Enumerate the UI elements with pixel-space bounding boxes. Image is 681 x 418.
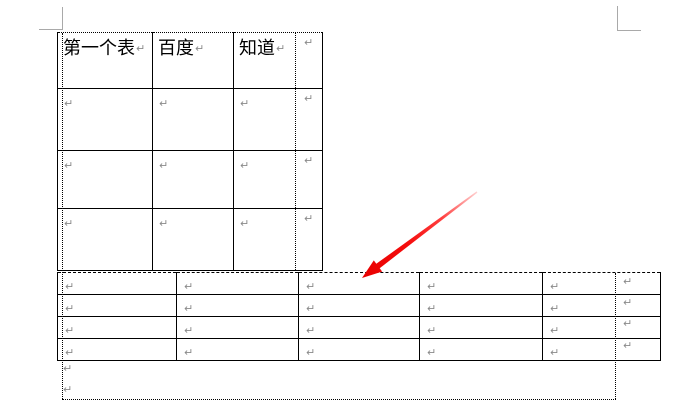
table-row: ↵↵↵↵↵ — [58, 339, 661, 361]
paragraph-mark: ↵ — [159, 97, 168, 110]
table-cell[interactable]: ↵ — [177, 317, 299, 339]
paragraph-mark: ↵ — [306, 346, 315, 359]
table-cell[interactable]: ↵ — [543, 339, 661, 361]
table-row: ↵↵↵ — [58, 151, 323, 209]
table-cell[interactable]: ↵ — [58, 151, 153, 209]
paragraph-mark: ↵ — [159, 217, 168, 230]
table-cell[interactable]: ↵ — [177, 273, 299, 295]
table-cell[interactable]: ↵ — [58, 317, 177, 339]
paragraph-mark: ↵ — [184, 346, 193, 359]
first-table[interactable]: 第一个表↵百度↵知道↵↵↵↵↵↵↵↵↵↵ — [57, 32, 323, 271]
paragraph-mark: ↵ — [136, 42, 145, 55]
table-cell[interactable]: ↵ — [420, 273, 543, 295]
paragraph-mark: ↵ — [623, 318, 632, 329]
second-table[interactable]: ↵↵↵↵↵↵↵↵↵↵↵↵↵↵↵↵↵↵↵↵ — [57, 272, 661, 361]
margin-crop-mark-top-right-horizontal — [617, 30, 641, 31]
paragraph-mark: ↵ — [550, 280, 559, 293]
paragraph-mark: ↵ — [623, 340, 632, 351]
table-cell[interactable]: ↵ — [299, 295, 420, 317]
paragraph-mark: ↵ — [65, 302, 74, 315]
paragraph-mark: ↵ — [184, 324, 193, 337]
paragraph-mark: ↵ — [184, 280, 193, 293]
table-cell[interactable]: ↵ — [177, 295, 299, 317]
paragraph-mark: ↵ — [184, 302, 193, 315]
table-row: ↵↵↵ — [58, 209, 323, 271]
table-cell[interactable]: ↵ — [543, 295, 661, 317]
margin-crop-mark-top-left-vertical — [62, 7, 63, 30]
table-cell[interactable]: ↵ — [299, 339, 420, 361]
table-row: ↵↵↵↵↵ — [58, 317, 661, 339]
table-row: ↵↵↵↵↵ — [58, 273, 661, 295]
paragraph-mark: ↵ — [63, 384, 72, 395]
header-cell-text: 知道 — [239, 38, 275, 59]
table-cell[interactable]: ↵ — [420, 295, 543, 317]
paragraph-mark: ↵ — [195, 42, 204, 55]
word-page: 第一个表↵百度↵知道↵↵↵↵↵↵↵↵↵↵ ↵↵↵↵↵↵↵↵↵↵↵↵↵↵↵↵↵↵↵… — [0, 0, 681, 418]
table-cell[interactable]: ↵ — [420, 339, 543, 361]
table-cell[interactable]: ↵ — [153, 151, 234, 209]
table-cell[interactable]: ↵ — [420, 317, 543, 339]
paragraph-mark: ↵ — [304, 37, 313, 48]
table-cell[interactable]: ↵ — [153, 209, 234, 271]
table-row: ↵↵↵ — [58, 89, 323, 151]
paragraph-mark: ↵ — [427, 302, 436, 315]
paragraph-mark: ↵ — [276, 42, 285, 55]
header-cell-text: 百度 — [158, 38, 194, 59]
paragraph-mark: ↵ — [304, 93, 313, 104]
text-boundary-bottom — [62, 399, 616, 400]
table-cell[interactable]: ↵ — [177, 339, 299, 361]
header-cell[interactable]: 第一个表↵ — [58, 33, 153, 89]
table-cell[interactable]: ↵ — [543, 317, 661, 339]
paragraph-mark: ↵ — [304, 155, 313, 166]
table-cell[interactable]: ↵ — [58, 89, 153, 151]
paragraph-mark: ↵ — [240, 159, 249, 172]
paragraph-mark: ↵ — [65, 324, 74, 337]
paragraph-mark: ↵ — [306, 280, 315, 293]
arrow-shape — [362, 191, 477, 278]
paragraph-mark: ↵ — [240, 97, 249, 110]
table-row: 第一个表↵百度↵知道↵ — [58, 33, 323, 89]
header-cell-text: 第一个表 — [63, 38, 135, 59]
paragraph-mark: ↵ — [623, 297, 632, 308]
table-cell[interactable]: ↵ — [153, 89, 234, 151]
paragraph-mark: ↵ — [240, 217, 249, 230]
paragraph-mark: ↵ — [427, 280, 436, 293]
margin-crop-mark-top-right-vertical — [617, 6, 618, 30]
table-row: ↵↵↵↵↵ — [58, 295, 661, 317]
paragraph-mark: ↵ — [427, 324, 436, 337]
paragraph-mark: ↵ — [427, 346, 436, 359]
margin-crop-mark-top-left-horizontal — [39, 29, 62, 30]
header-cell[interactable]: 百度↵ — [153, 33, 234, 89]
paragraph-mark: ↵ — [159, 159, 168, 172]
paragraph-mark: ↵ — [65, 346, 74, 359]
table-cell[interactable]: ↵ — [299, 273, 420, 295]
paragraph-mark: ↵ — [64, 97, 73, 110]
table-cell[interactable]: ↵ — [58, 273, 177, 295]
table-cell[interactable]: ↵ — [58, 339, 177, 361]
table-cell[interactable]: ↵ — [58, 295, 177, 317]
paragraph-mark: ↵ — [64, 159, 73, 172]
table-cell[interactable]: ↵ — [299, 317, 420, 339]
paragraph-mark: ↵ — [63, 363, 72, 374]
paragraph-mark: ↵ — [306, 324, 315, 337]
paragraph-mark: ↵ — [64, 217, 73, 230]
paragraph-mark: ↵ — [304, 213, 313, 224]
paragraph-mark: ↵ — [65, 280, 74, 293]
table-cell[interactable]: ↵ — [58, 209, 153, 271]
table-cell[interactable]: ↵ — [543, 273, 661, 295]
paragraph-mark: ↵ — [306, 302, 315, 315]
paragraph-mark: ↵ — [550, 346, 559, 359]
paragraph-mark: ↵ — [550, 324, 559, 337]
paragraph-mark: ↵ — [623, 276, 632, 287]
paragraph-mark: ↵ — [550, 302, 559, 315]
